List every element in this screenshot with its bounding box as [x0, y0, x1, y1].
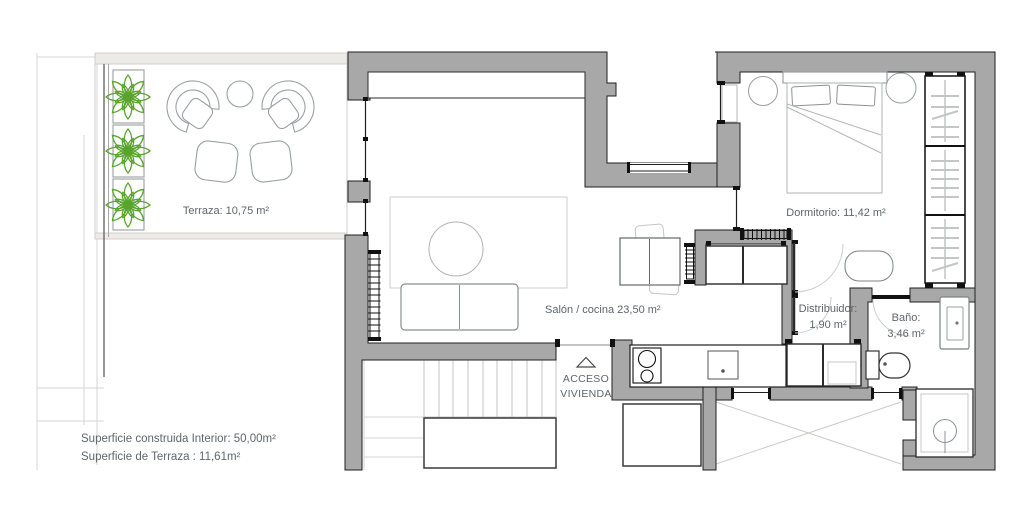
entrance-label: ACCESO VIVIENDA	[536, 372, 636, 402]
radiator	[368, 250, 381, 341]
wall-segment	[348, 181, 370, 202]
terraza-label: Terraza: 10,75 m²	[136, 204, 316, 219]
pouf	[845, 251, 893, 281]
surface-summary: Superficie construida Interior: 50,00m² …	[81, 430, 276, 466]
bed	[783, 72, 887, 193]
stair-landing	[424, 418, 556, 468]
wall-segment	[717, 123, 740, 187]
salon-furniture	[368, 72, 696, 341]
wall-segment	[770, 387, 872, 400]
floor-plan: Terraza: 10,75 m² Salón / cocina 23,50 m…	[0, 0, 1032, 512]
coffee-table	[227, 81, 253, 107]
window	[733, 186, 740, 231]
stove	[633, 348, 661, 383]
appliance-closet	[785, 339, 861, 386]
window	[717, 81, 737, 124]
window	[871, 388, 902, 399]
sofa	[401, 284, 518, 330]
void-area	[716, 402, 901, 464]
bano-name: Baño:	[856, 310, 956, 326]
window	[363, 199, 368, 236]
window	[363, 97, 368, 182]
salon-label: Salón / cocina 23,50 m²	[545, 303, 661, 318]
entrance-label-line1: ACCESO	[536, 372, 636, 387]
bedside-table	[749, 77, 778, 106]
stairwell	[364, 360, 556, 470]
summary-line2: Superficie de Terraza : 11,61m²	[81, 448, 276, 466]
entrance-label-line2: VIVIENDA	[536, 387, 636, 402]
window	[731, 388, 771, 399]
wall-segment	[903, 440, 917, 456]
entrance-threshold	[555, 339, 615, 347]
shower	[916, 389, 973, 457]
stool	[194, 140, 239, 184]
wall-segment	[903, 390, 917, 420]
bedside-table	[886, 73, 916, 103]
lower-room	[623, 404, 701, 466]
kitchen-sink	[708, 351, 738, 379]
entrance-arrow-icon	[577, 358, 595, 368]
wardrobe	[925, 72, 965, 288]
summary-line1: Superficie construida Interior: 50,00m²	[81, 430, 276, 448]
stool	[249, 140, 293, 184]
hall-closet	[706, 241, 787, 284]
window	[627, 162, 691, 173]
wall-segment	[703, 382, 716, 470]
round-table	[429, 222, 483, 276]
bedroom-door	[792, 240, 843, 294]
bano-area: 3,46 m²	[856, 326, 956, 342]
dining-set	[620, 224, 680, 295]
radiator	[684, 243, 696, 284]
exterior-boundary-lines	[37, 53, 104, 470]
toilet	[866, 351, 910, 379]
built-in-closet	[368, 72, 585, 98]
bano-label: Baño: 3,46 m²	[856, 310, 956, 342]
dormitorio-label: Dormitorio: 11,42 m²	[746, 206, 926, 221]
